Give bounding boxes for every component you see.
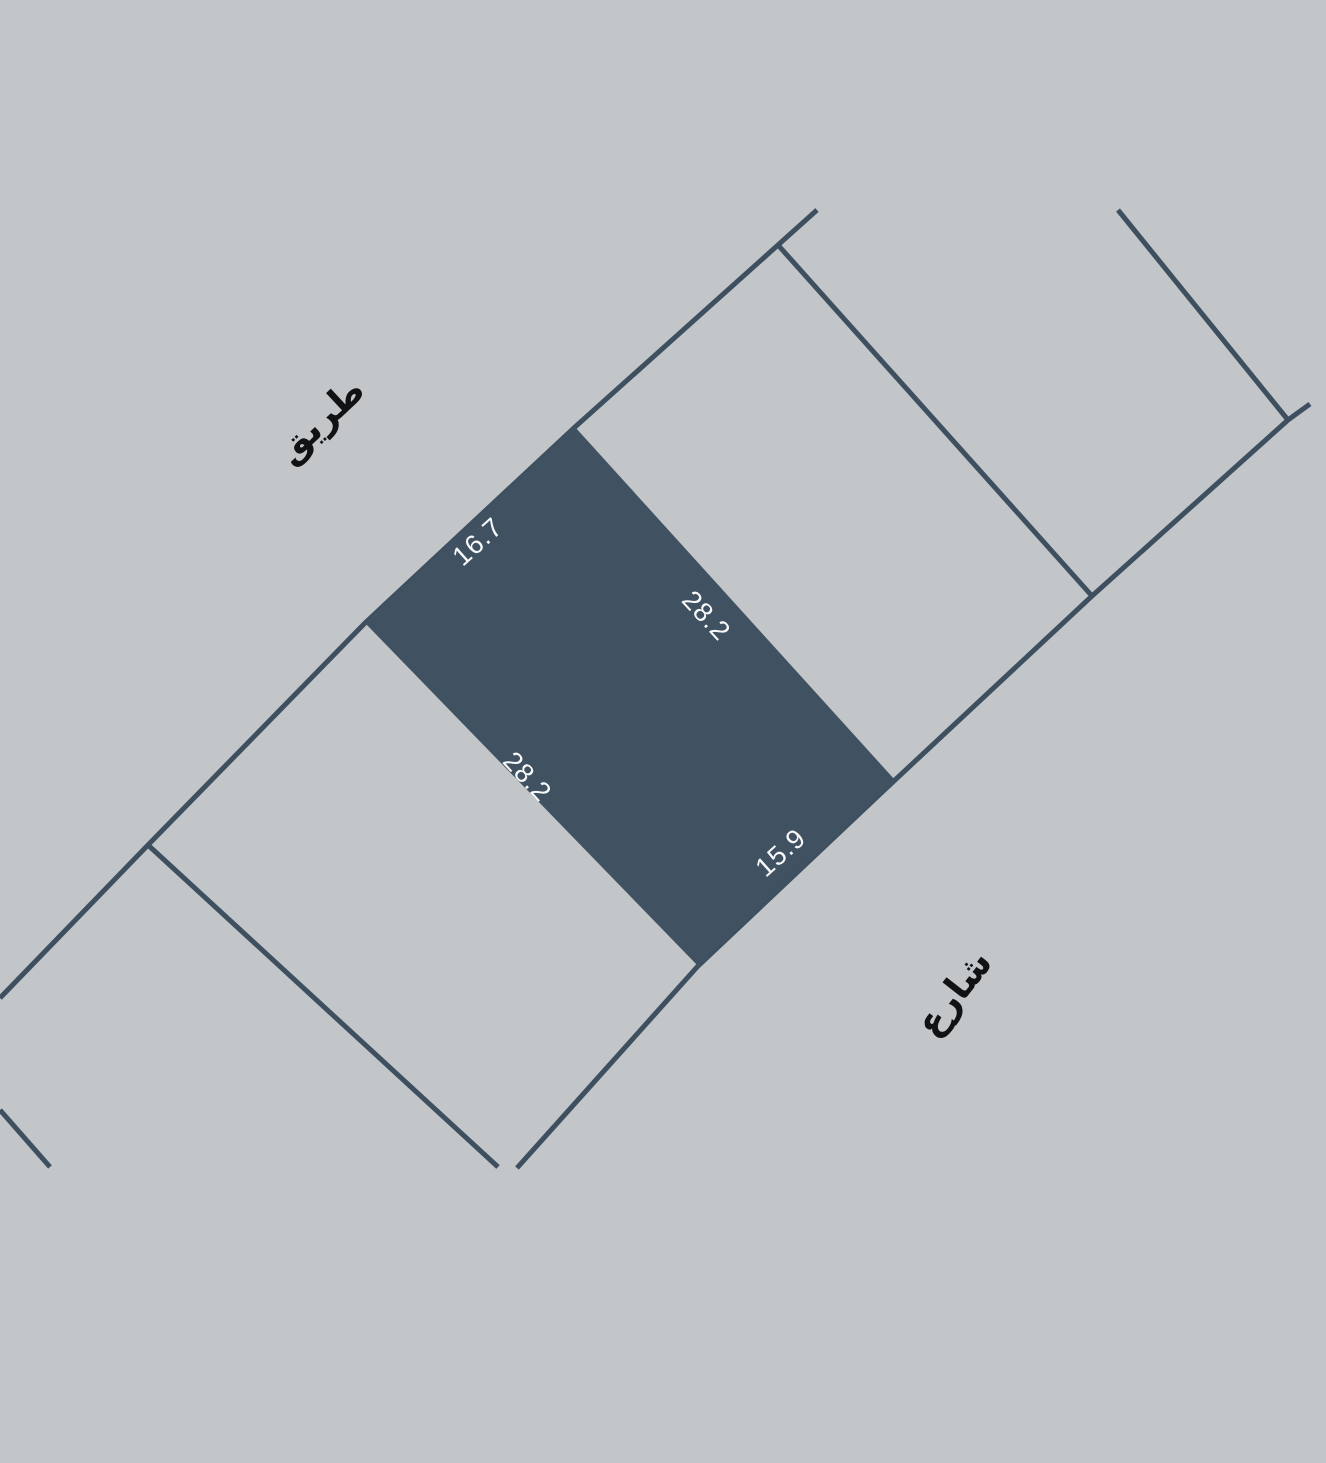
- parcel-divider-line-upper: [778, 245, 1092, 596]
- parcel-divider-line-lower: [148, 845, 498, 1167]
- parcel-map-canvas: [0, 0, 1326, 1463]
- parcel-divider-line-edge: [0, 1110, 50, 1167]
- parcel-divider-line-far-right: [1118, 210, 1288, 420]
- parcel-map: 16.7 28.2 28.2 15.9 طريق شارع: [0, 0, 1326, 1463]
- selected-parcel[interactable]: [365, 427, 895, 966]
